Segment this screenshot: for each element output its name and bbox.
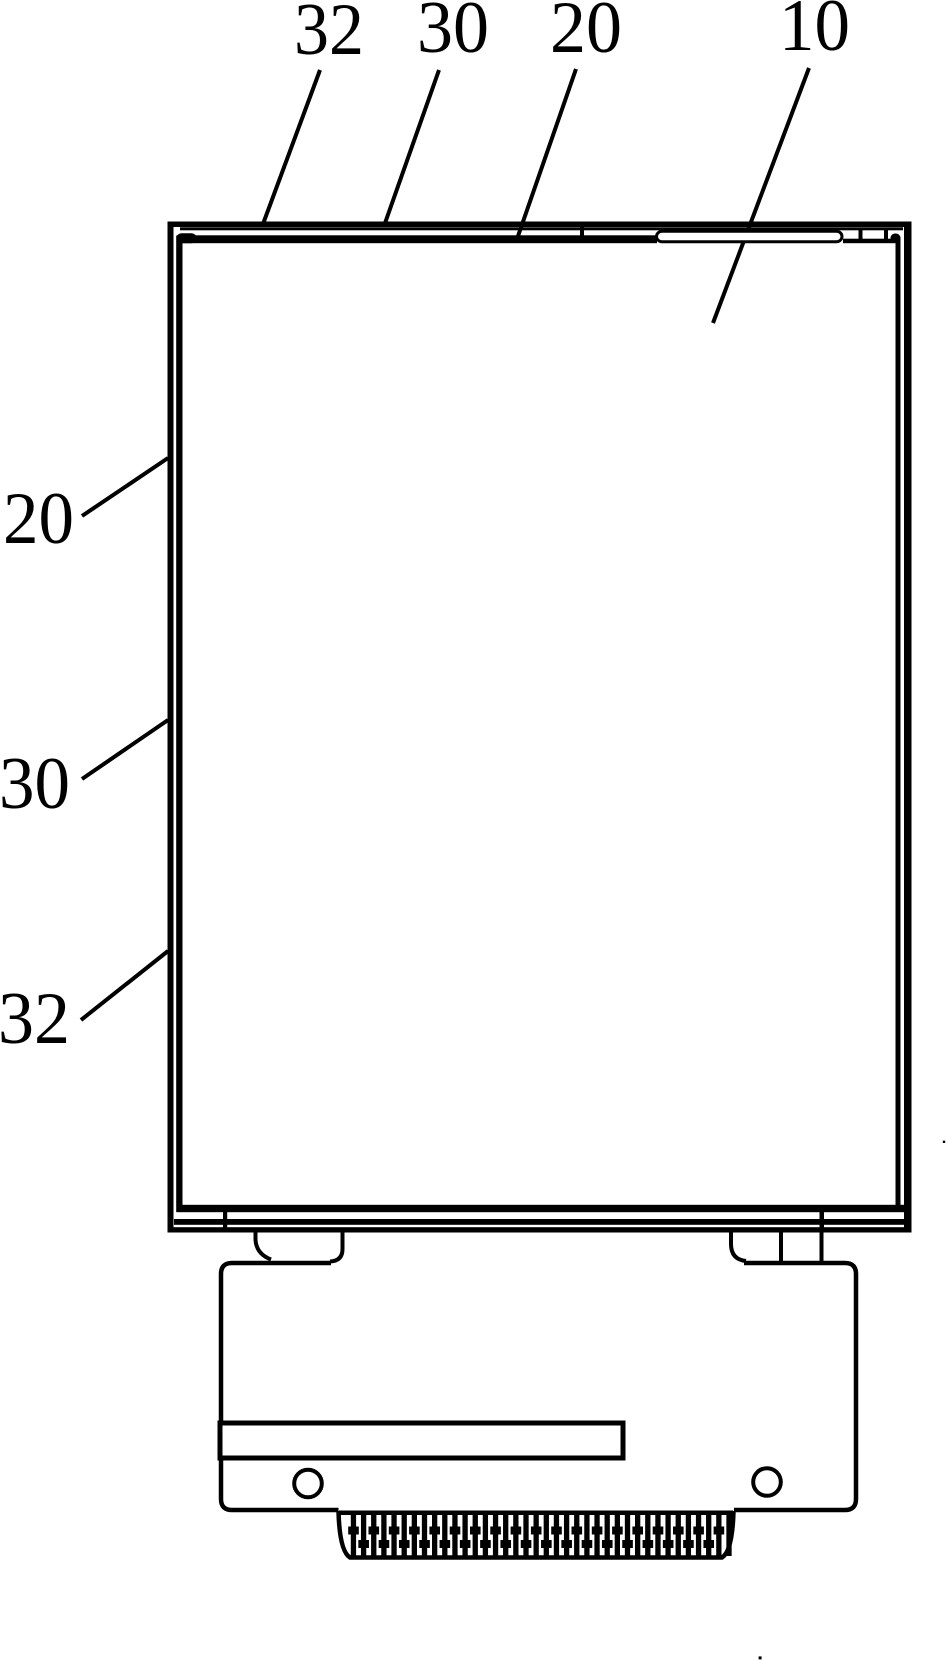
svg-text:32: 32	[0, 978, 70, 1060]
svg-text:30: 30	[417, 0, 489, 69]
svg-text:10: 10	[779, 0, 850, 67]
svg-text:30: 30	[0, 743, 70, 825]
svg-text:32: 32	[294, 0, 364, 71]
svg-text:20: 20	[3, 478, 74, 560]
svg-text:20: 20	[550, 0, 622, 69]
